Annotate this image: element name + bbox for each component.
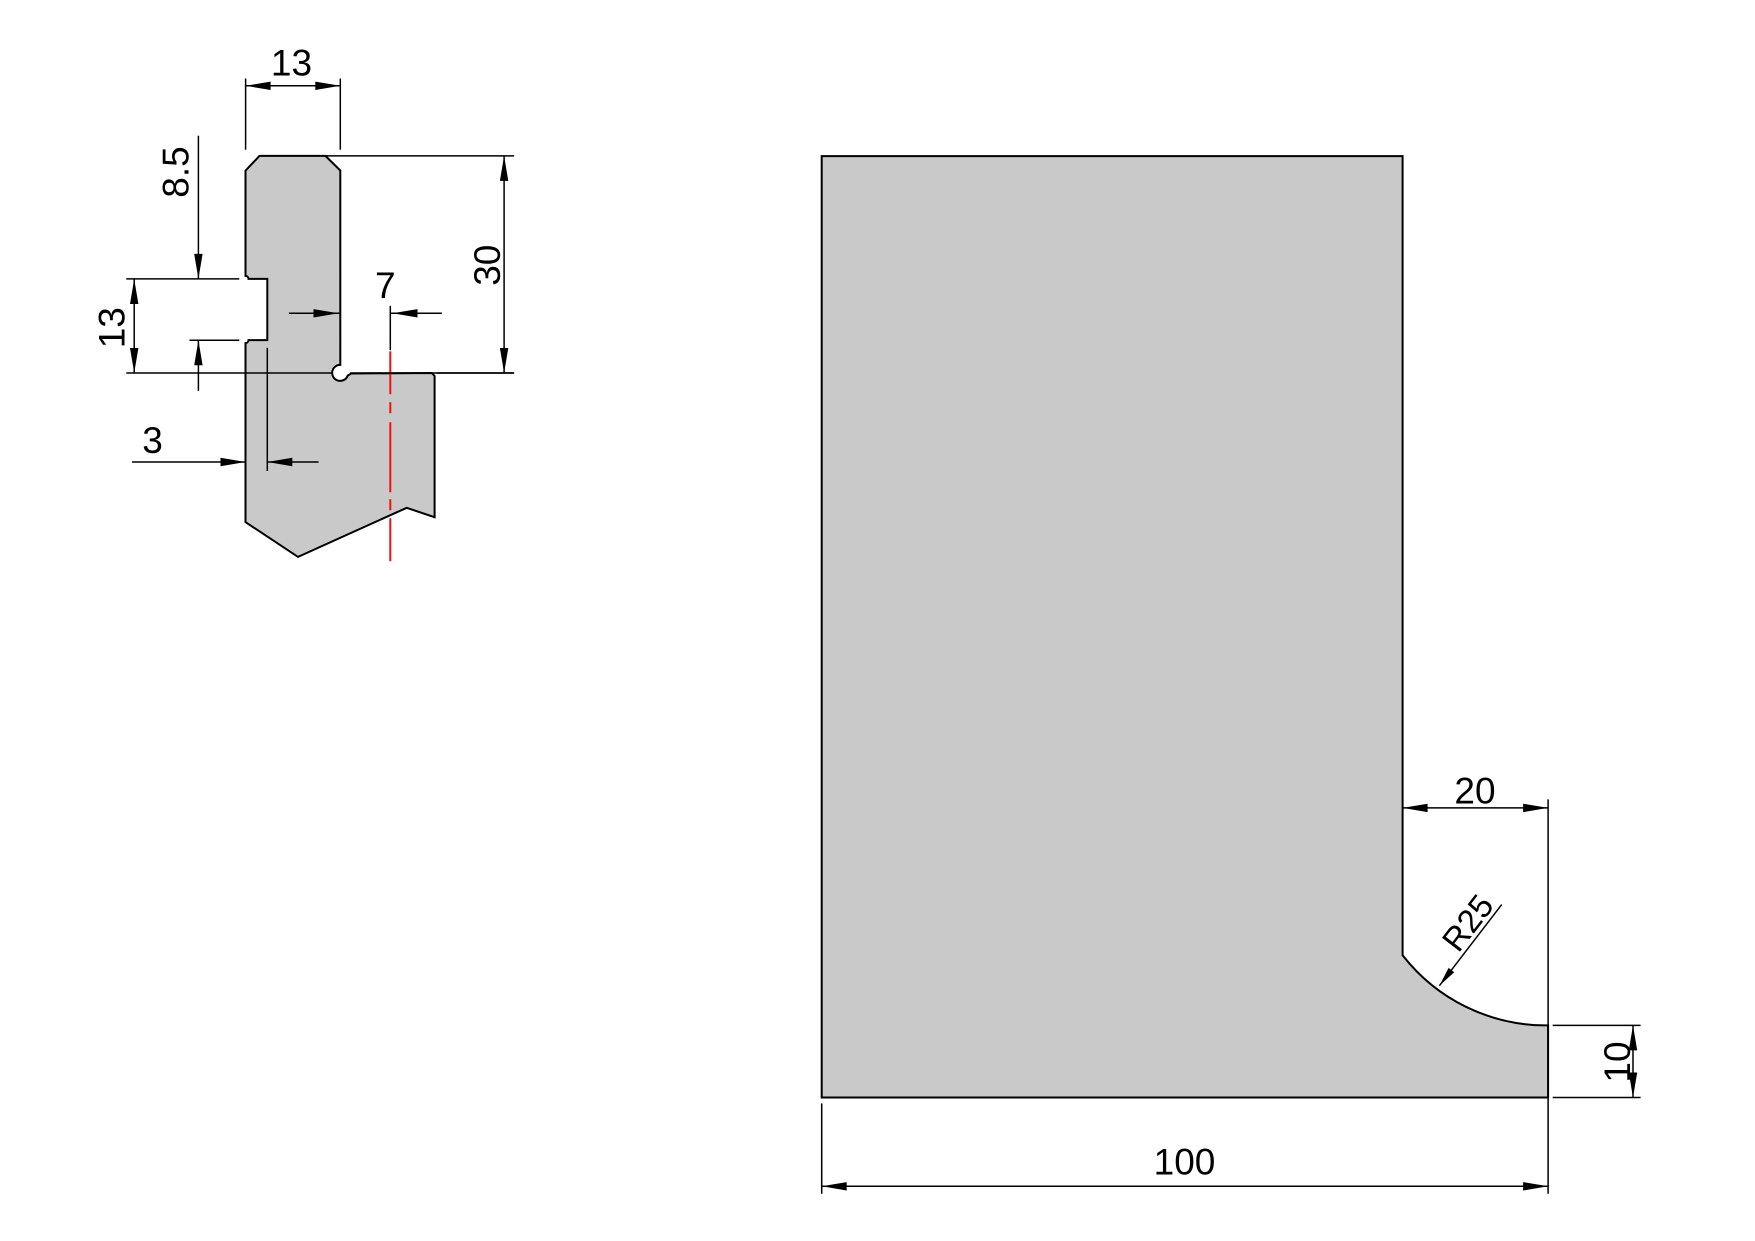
svg-text:3: 3	[142, 420, 163, 461]
svg-text:8.5: 8.5	[156, 146, 197, 197]
svg-text:30: 30	[467, 245, 508, 286]
svg-text:100: 100	[1154, 1142, 1216, 1183]
svg-text:13: 13	[92, 307, 133, 348]
svg-text:13: 13	[271, 43, 312, 84]
svg-text:10: 10	[1597, 1041, 1638, 1082]
svg-text:7: 7	[375, 265, 396, 306]
svg-text:20: 20	[1454, 771, 1495, 812]
